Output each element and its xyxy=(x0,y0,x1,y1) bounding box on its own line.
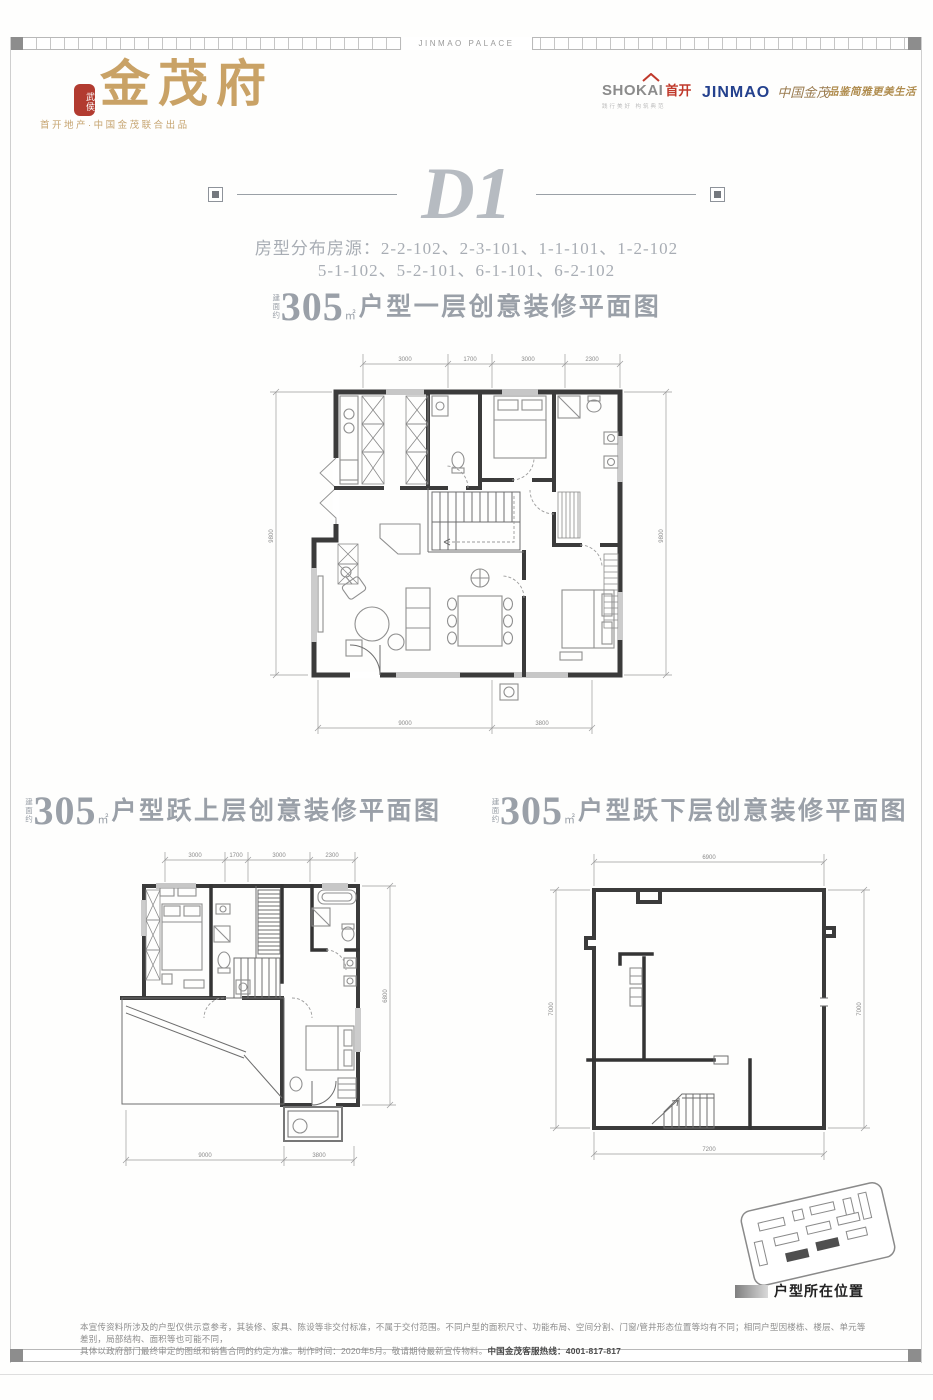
dim-label: 6800 xyxy=(383,989,389,1003)
dim-label: 3000 xyxy=(398,357,412,363)
plan3-dim-left: 7000 xyxy=(549,887,590,1131)
plan2-area: 305 xyxy=(33,796,96,826)
plan2-dim-right: 6800 xyxy=(362,883,396,1108)
siteplan-legend: 户型所在位置 xyxy=(735,1281,864,1301)
legend-label: 户型所在位置 xyxy=(774,1281,864,1301)
plan1-title: 户型一层创意装修平面图 xyxy=(359,294,662,322)
brand-logo: 金茂府 xyxy=(100,56,274,112)
disclaimer-line2-text: 具体以政府部门最终审定的图纸和销售合同的约定为准。制作时间：2020年5月。敬请… xyxy=(80,1346,487,1356)
plan1-dim-left: 9800 xyxy=(269,389,332,678)
logo-quality-tagline: 品鉴简雅更美生活 xyxy=(828,84,916,99)
plan3-area: 305 xyxy=(500,796,563,826)
dim-label: 3800 xyxy=(312,1153,326,1159)
logo-jinmao: JINMAO 中国金茂 xyxy=(702,82,829,102)
hotline-number: 4001-817-817 xyxy=(566,1346,621,1356)
frame-corner-bottom-left xyxy=(10,1349,23,1362)
brochure-page: JINMAO PALACE 武侯 金茂府 首开地产·中国金茂联合出品 SHOKA… xyxy=(0,0,933,1400)
dim-label: 1700 xyxy=(463,357,477,363)
kitchen-icon xyxy=(340,396,358,484)
floorplan-level1: 3000 1700 3000 2300 9800 9800 9000 3800 xyxy=(262,340,682,752)
terrace-icon xyxy=(122,998,284,1104)
dim-label: 3800 xyxy=(535,721,549,727)
dim-label: 7000 xyxy=(549,1002,555,1016)
plan2-area-prefix: 建面约 xyxy=(24,798,32,824)
dim-label: 2300 xyxy=(585,357,599,363)
frame-corner-top-left xyxy=(10,37,23,50)
siteplan-outline xyxy=(739,1181,896,1287)
plan3-dim-right: 7000 xyxy=(828,887,870,1131)
plan3-walls xyxy=(586,890,834,1128)
plan1-dim-right: 9800 xyxy=(624,389,672,678)
dim-label: 9800 xyxy=(659,529,665,543)
plan3-title: 户型跃下层创意装修平面图 xyxy=(578,798,908,826)
floorplan-upper: 3000 1700 3000 2300 6800 9000 3800 xyxy=(96,840,426,1180)
dim-label: 6900 xyxy=(702,855,716,861)
plan1-dim-top: 3000 1700 3000 2300 xyxy=(360,354,623,388)
plan1-dim-bottom: 9000 3800 xyxy=(315,680,595,734)
plan2-area-unit: ㎡ xyxy=(97,814,108,826)
plan2-heading: 建面约305㎡户型跃上层创意装修平面图 xyxy=(0,796,466,826)
hotline-label: 中国金茂客服热线： xyxy=(487,1346,565,1356)
duct-icon xyxy=(630,968,642,1006)
disclaimer-line1: 本宣传资料所涉及的户型仅供示意参考，其装修、家具、陈设等非交付标准，不属于交付范… xyxy=(80,1321,872,1345)
dining-table-icon xyxy=(448,569,513,646)
plan3-area-unit: ㎡ xyxy=(564,814,575,826)
dim-label: 9000 xyxy=(398,721,412,727)
stair-icon xyxy=(432,492,520,550)
plan3-area-prefix: 建面约 xyxy=(491,798,499,824)
jinmao-latin: JINMAO xyxy=(702,84,770,102)
bed-icon xyxy=(162,904,356,1098)
page-title: JINMAO PALACE xyxy=(400,37,534,50)
frame-corner-bottom-right xyxy=(908,1349,921,1362)
plan3-dim-bottom: 7200 xyxy=(591,1132,827,1160)
plan1-area-unit: ㎡ xyxy=(345,310,356,322)
stair-icon xyxy=(652,1094,714,1128)
legend-swatch-icon xyxy=(735,1285,768,1298)
decor-line-left xyxy=(237,194,397,195)
brand-seal: 武侯 xyxy=(74,84,95,116)
logo-shokai: SHOKAI 首开 践行美好 构筑典范 xyxy=(602,80,698,110)
plan1-heading: 建面约305㎡户型一层创意装修平面图 xyxy=(0,292,933,322)
dim-label: 9800 xyxy=(269,529,275,543)
unit-title-section: D1 房型分布房源：2-2-102、2-3-101、1-1-101、1-2-10… xyxy=(0,156,933,282)
plan2-dim-bottom: 9000 3800 xyxy=(123,1110,357,1166)
outdoor-unit-icon xyxy=(500,684,518,700)
dim-label: 7000 xyxy=(857,1002,863,1016)
dim-label: 1700 xyxy=(229,853,243,859)
unit-distribution-line1: 房型分布房源：2-2-102、2-3-101、1-1-101、1-2-102 xyxy=(255,238,678,260)
dim-label: 9000 xyxy=(198,1153,212,1159)
unit-distribution-line2: 5-1-102、5-2-101、6-1-101、6-2-102 xyxy=(318,260,615,282)
floorplan-lower: 6900 7000 7000 7200 xyxy=(532,842,910,1172)
shokai-latin: SHOKAI xyxy=(602,82,663,99)
plan2-walls xyxy=(122,884,360,1141)
roof-icon xyxy=(642,73,660,82)
bathroom-icon xyxy=(432,396,618,473)
decor-line-right xyxy=(536,194,696,195)
plan2-dim-top: 3000 1700 3000 2300 xyxy=(162,852,358,882)
jinmao-cn: 中国金茂 xyxy=(777,82,829,101)
closet-hatch xyxy=(146,890,160,980)
plan1-area: 305 xyxy=(281,292,344,322)
disclaimer-line2: 具体以政府部门最终审定的图纸和销售合同的约定为准。制作时间：2020年5月。敬请… xyxy=(80,1345,872,1357)
plan1-area-prefix: 建面约 xyxy=(272,294,280,320)
living-room-icon xyxy=(318,524,430,656)
decor-square-left-icon xyxy=(208,187,223,202)
plan2-title: 户型跃上层创意装修平面图 xyxy=(111,798,441,826)
dim-label: 2300 xyxy=(325,853,339,859)
dim-label: 7200 xyxy=(702,1147,716,1153)
disclaimer: 本宣传资料所涉及的户型仅供示意参考，其装修、家具、陈设等非交付标准，不属于交付范… xyxy=(80,1321,872,1357)
plan3-heading: 建面约305㎡户型跃下层创意装修平面图 xyxy=(466,796,933,826)
frame-corner-top-right xyxy=(908,37,921,50)
shokai-tagline: 践行美好 构筑典范 xyxy=(602,102,698,110)
siteplan xyxy=(718,1176,918,1291)
dim-label: 3000 xyxy=(272,853,286,859)
stair-icon xyxy=(234,890,280,998)
dim-label: 3000 xyxy=(188,853,202,859)
unit-title: D1 xyxy=(421,159,511,229)
dim-label: 3000 xyxy=(521,357,535,363)
shokai-cn: 首开 xyxy=(665,80,691,99)
plan3-dim-top: 6900 xyxy=(591,854,827,886)
decor-square-right-icon xyxy=(710,187,725,202)
page-edge-line xyxy=(0,1374,933,1375)
brand-subtitle: 首开地产·中国金茂联合出品 xyxy=(40,117,190,131)
balcony-icon xyxy=(284,1107,342,1141)
bathroom-icon xyxy=(214,890,356,994)
